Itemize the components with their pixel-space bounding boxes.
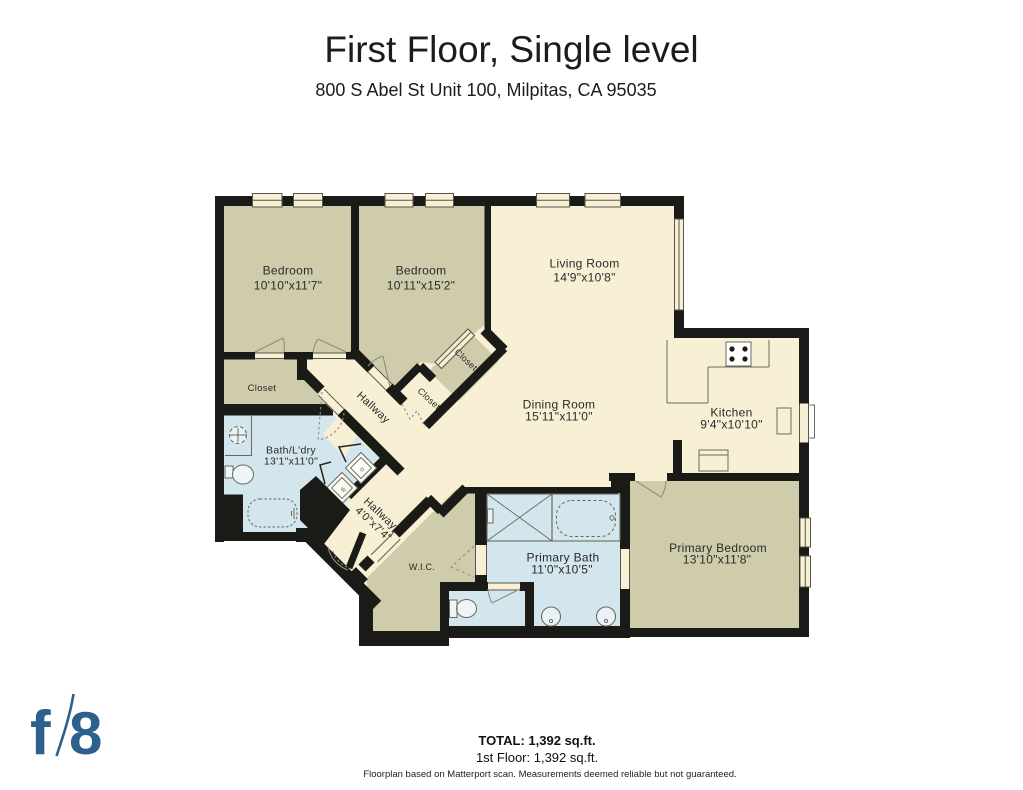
- svg-text:Closet: Closet: [248, 383, 277, 394]
- svg-text:10'10"x11'7": 10'10"x11'7": [254, 279, 323, 293]
- svg-text:10'11"x15'2": 10'11"x15'2": [387, 279, 456, 293]
- svg-text:Bedroom: Bedroom: [396, 264, 447, 278]
- svg-text:14'9"x10'8": 14'9"x10'8": [553, 271, 615, 285]
- svg-text:W.I.C.: W.I.C.: [409, 562, 435, 572]
- svg-text:13'1"x11'0": 13'1"x11'0": [264, 456, 318, 468]
- svg-text:f: f: [30, 699, 51, 768]
- svg-text:Living Room: Living Room: [550, 257, 620, 271]
- svg-text:9'4"x10'10": 9'4"x10'10": [700, 418, 762, 432]
- svg-text:8: 8: [69, 700, 102, 767]
- svg-text:11'0"x10'5": 11'0"x10'5": [531, 563, 593, 577]
- svg-text:Bedroom: Bedroom: [263, 264, 314, 278]
- svg-text:15'11"x11'0": 15'11"x11'0": [525, 410, 593, 424]
- svg-text:13'10"x11'8": 13'10"x11'8": [683, 553, 752, 567]
